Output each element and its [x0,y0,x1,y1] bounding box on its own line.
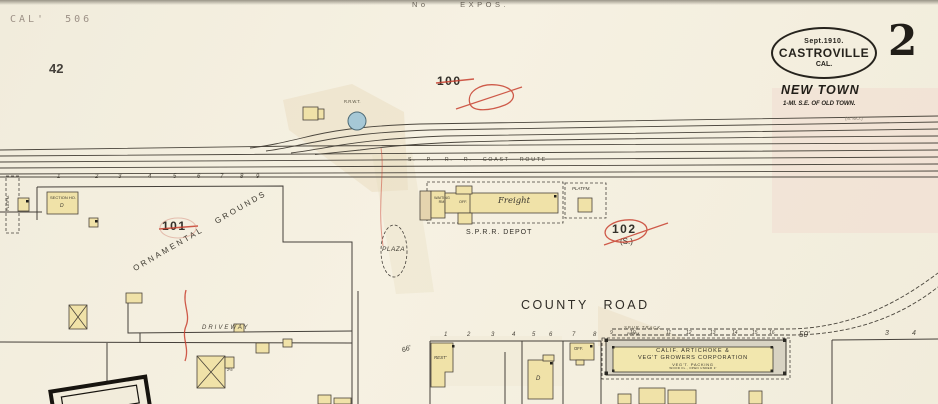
dwelling-footprint [528,360,553,399]
block-number-102: 102 [612,223,637,235]
warehouse-note: WOOD FL., OPEN UNDER 3' [669,367,716,371]
plaza-label: PLAZA [382,247,405,254]
small-office-label: OFF. [574,347,583,351]
lot-number: 8 [593,332,596,338]
lot-number: 5 [532,332,535,338]
lot-number: 7 [220,174,223,180]
sheet-number: 2 [888,20,917,62]
chimney-marks [26,195,593,365]
lot-number: 1 [57,174,60,180]
restaurant-label: REST' [434,356,447,360]
badge-city: CASTROVILLE [779,46,869,60]
water-tank-label: R.R.W.T. [344,100,361,104]
lot-number: 9 [610,331,613,336]
map-canvas: CAL' 506 42 No EXPOS. Sept.1910. CASTROV… [0,0,938,404]
warehouse-name-line1: CALIF. ARTICHOKE & [656,348,730,355]
lot-number: 3 [885,330,889,337]
ground-washes [283,84,938,386]
lot-number: 4 [512,332,515,338]
lot-number: 4 [148,174,151,180]
lot-number: 8 [240,174,243,180]
warehouse-label: CALIF. ARTICHOKE & VEG'T GROWERS CORPORA… [613,347,773,372]
depot-freight-label: Freight [498,197,530,206]
depot-office-label: OFF. [459,201,467,205]
restaurant-footprint [431,343,453,387]
lot-number: 12 [686,331,692,336]
lot-number: 2 [467,332,470,338]
ornamental-grounds-label: ORNAMENTAL GROUNDS [132,190,268,273]
plate-code-stamp: CAL' 506 [10,15,92,25]
new-town-note: 1-MI. S.E. OF OLD TOWN. [783,101,856,107]
block-outlines [0,186,938,404]
barn-note: 2½ [227,368,233,372]
dimension-66: 66' [401,345,412,354]
badge-state: CAL. [816,61,832,68]
paper-edge-shadow [0,0,938,5]
corner-note: (N. MO.) [845,117,863,122]
block-number-101: 101 [162,220,187,232]
dimension-50: 50' [799,331,809,339]
dwelling-marker: D [536,376,540,382]
lot-number: 2 [95,174,98,180]
water-tank [348,112,366,130]
block-number-100: 100 [437,75,462,87]
lot-number: 5 [173,174,176,180]
lot-number: 10 [630,331,636,336]
lot-number: 6 [197,174,200,180]
title-badge: Sept.1910. CASTROVILLE CAL. [771,27,877,79]
lot-number: 7 [572,332,575,338]
lot-number: 1 [444,332,447,338]
page-number: 42 [49,62,63,75]
driveway-label: DRIVEWAY [202,325,249,331]
barn-small [69,305,87,329]
barn-footprint [197,356,225,388]
section-house-marker: D [60,204,64,209]
new-town-label: NEW TOWN [781,84,860,97]
lot-number: 9 [256,174,259,180]
badge-date: Sept.1910. [804,38,844,45]
depot-waiting-room-label: WAITING RM. [432,196,452,205]
lot-number: 4 [912,330,916,337]
lot-number: 3 [491,332,494,338]
lot-number: 3 [118,174,121,180]
lot-number: 14 [732,331,738,336]
pump-house-footprint [303,107,318,120]
lot-number: 13 [710,331,716,336]
platform-left-label: PLATFM. [7,195,11,211]
section-house-label: SECTION HO. [46,196,80,200]
lot-number: 16 [769,331,775,336]
depot-platform-label: PLATFM. [572,187,591,192]
warehouse-name-line2: VEG'T GROWERS CORPORATION [638,355,748,362]
dark-building [50,377,150,404]
lot-number: 11 [666,331,671,336]
block-number-102-sub: (S.) [620,238,633,246]
lot-number: 15 [752,331,758,336]
county-road-label: COUNTY ROAD [521,299,650,312]
railroad-tracks [0,116,938,177]
lot-number: 6 [549,332,552,338]
route-label: S. P. R. R. COAST ROUTE [408,158,547,163]
depot-name-label: S.P.R.R. DEPOT [466,229,532,236]
